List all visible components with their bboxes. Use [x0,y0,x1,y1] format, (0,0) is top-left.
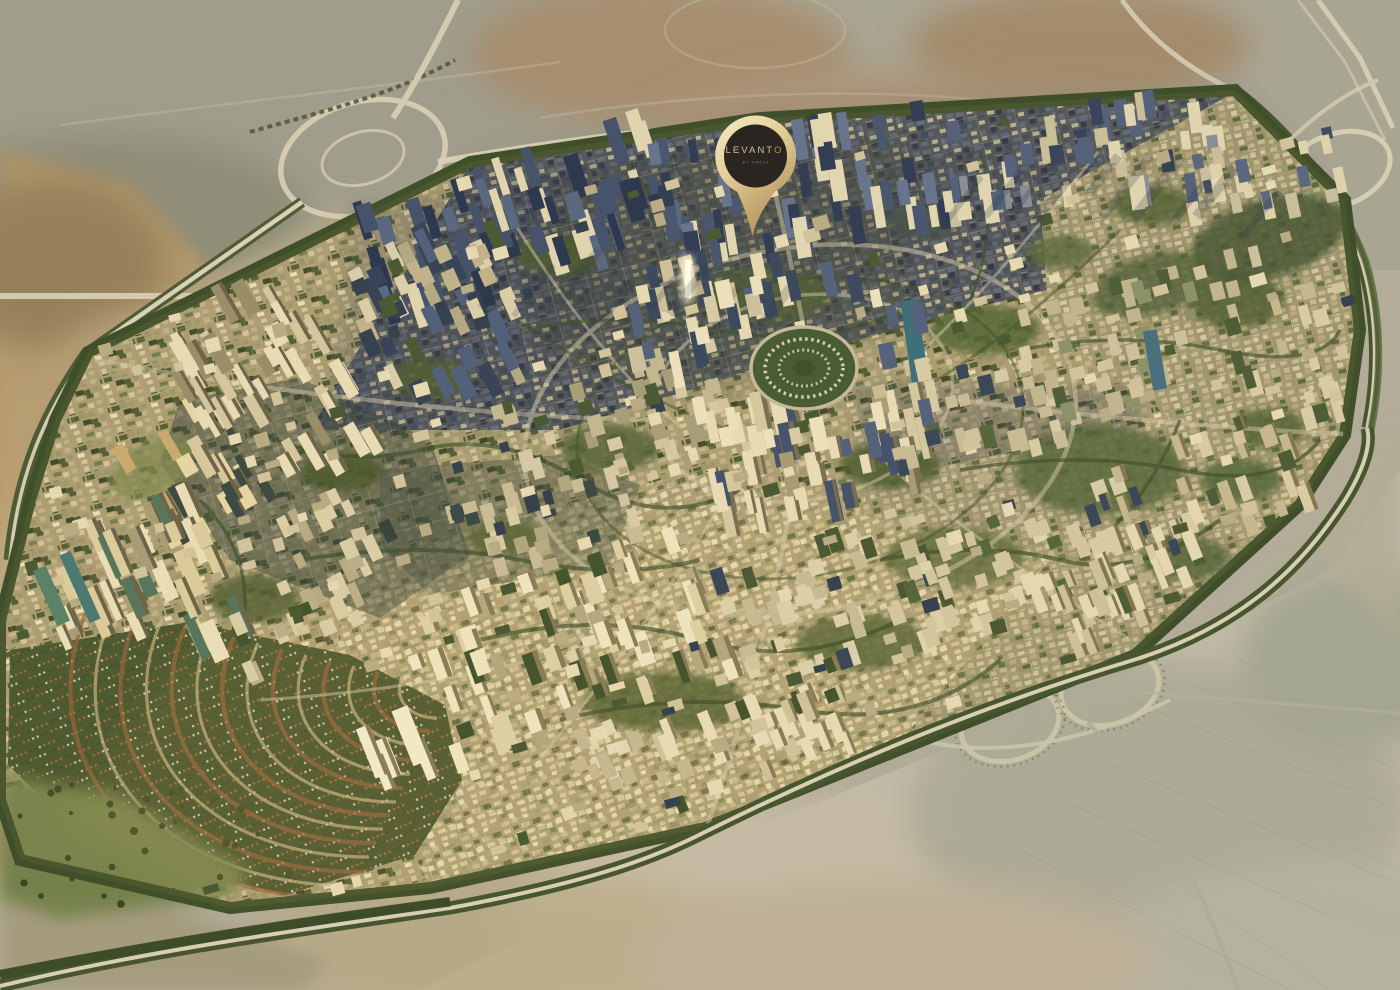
svg-text:LEVANTO: LEVANTO [726,145,784,156]
svg-text:BY ORO24: BY ORO24 [743,161,770,165]
